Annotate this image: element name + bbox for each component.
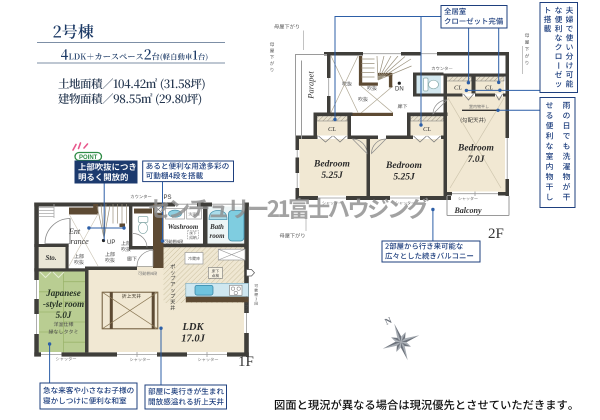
svg-text:Sto.: Sto.	[45, 254, 56, 262]
svg-text:Bedroom: Bedroom	[385, 161, 422, 171]
svg-text:Balcony: Balcony	[453, 206, 482, 215]
svg-text:-style room: -style room	[43, 299, 84, 309]
svg-text:CL: CL	[328, 126, 336, 133]
svg-text:7.0J: 7.0J	[468, 155, 485, 165]
svg-text:DN: DN	[395, 87, 404, 93]
svg-text:PS: PS	[164, 195, 172, 201]
svg-text:Bath: Bath	[209, 224, 224, 231]
svg-text:UP: UP	[107, 240, 115, 246]
svg-text:Washroom: Washroom	[168, 224, 199, 231]
svg-text:17.0J: 17.0J	[181, 334, 205, 345]
svg-text:Japanese: Japanese	[45, 288, 81, 298]
svg-text:POINT: POINT	[79, 155, 98, 161]
svg-text:5.25J: 5.25J	[321, 171, 343, 181]
svg-text:Parapet: Parapet	[306, 71, 316, 100]
svg-text:1F: 1F	[238, 354, 254, 370]
svg-text:5.0J: 5.0J	[56, 310, 72, 320]
svg-text:5.25J: 5.25J	[393, 173, 415, 183]
svg-text:Ent: Ent	[68, 227, 81, 236]
svg-text:Bedroom: Bedroom	[313, 160, 350, 170]
svg-text:LDK: LDK	[182, 322, 205, 333]
svg-text:Bedroom: Bedroom	[457, 144, 494, 154]
svg-text:2F: 2F	[488, 226, 504, 242]
svg-text:CL: CL	[423, 126, 431, 133]
svg-text:CL: CL	[454, 85, 462, 92]
svg-text:room: room	[210, 233, 226, 240]
svg-text:rance: rance	[71, 237, 90, 246]
